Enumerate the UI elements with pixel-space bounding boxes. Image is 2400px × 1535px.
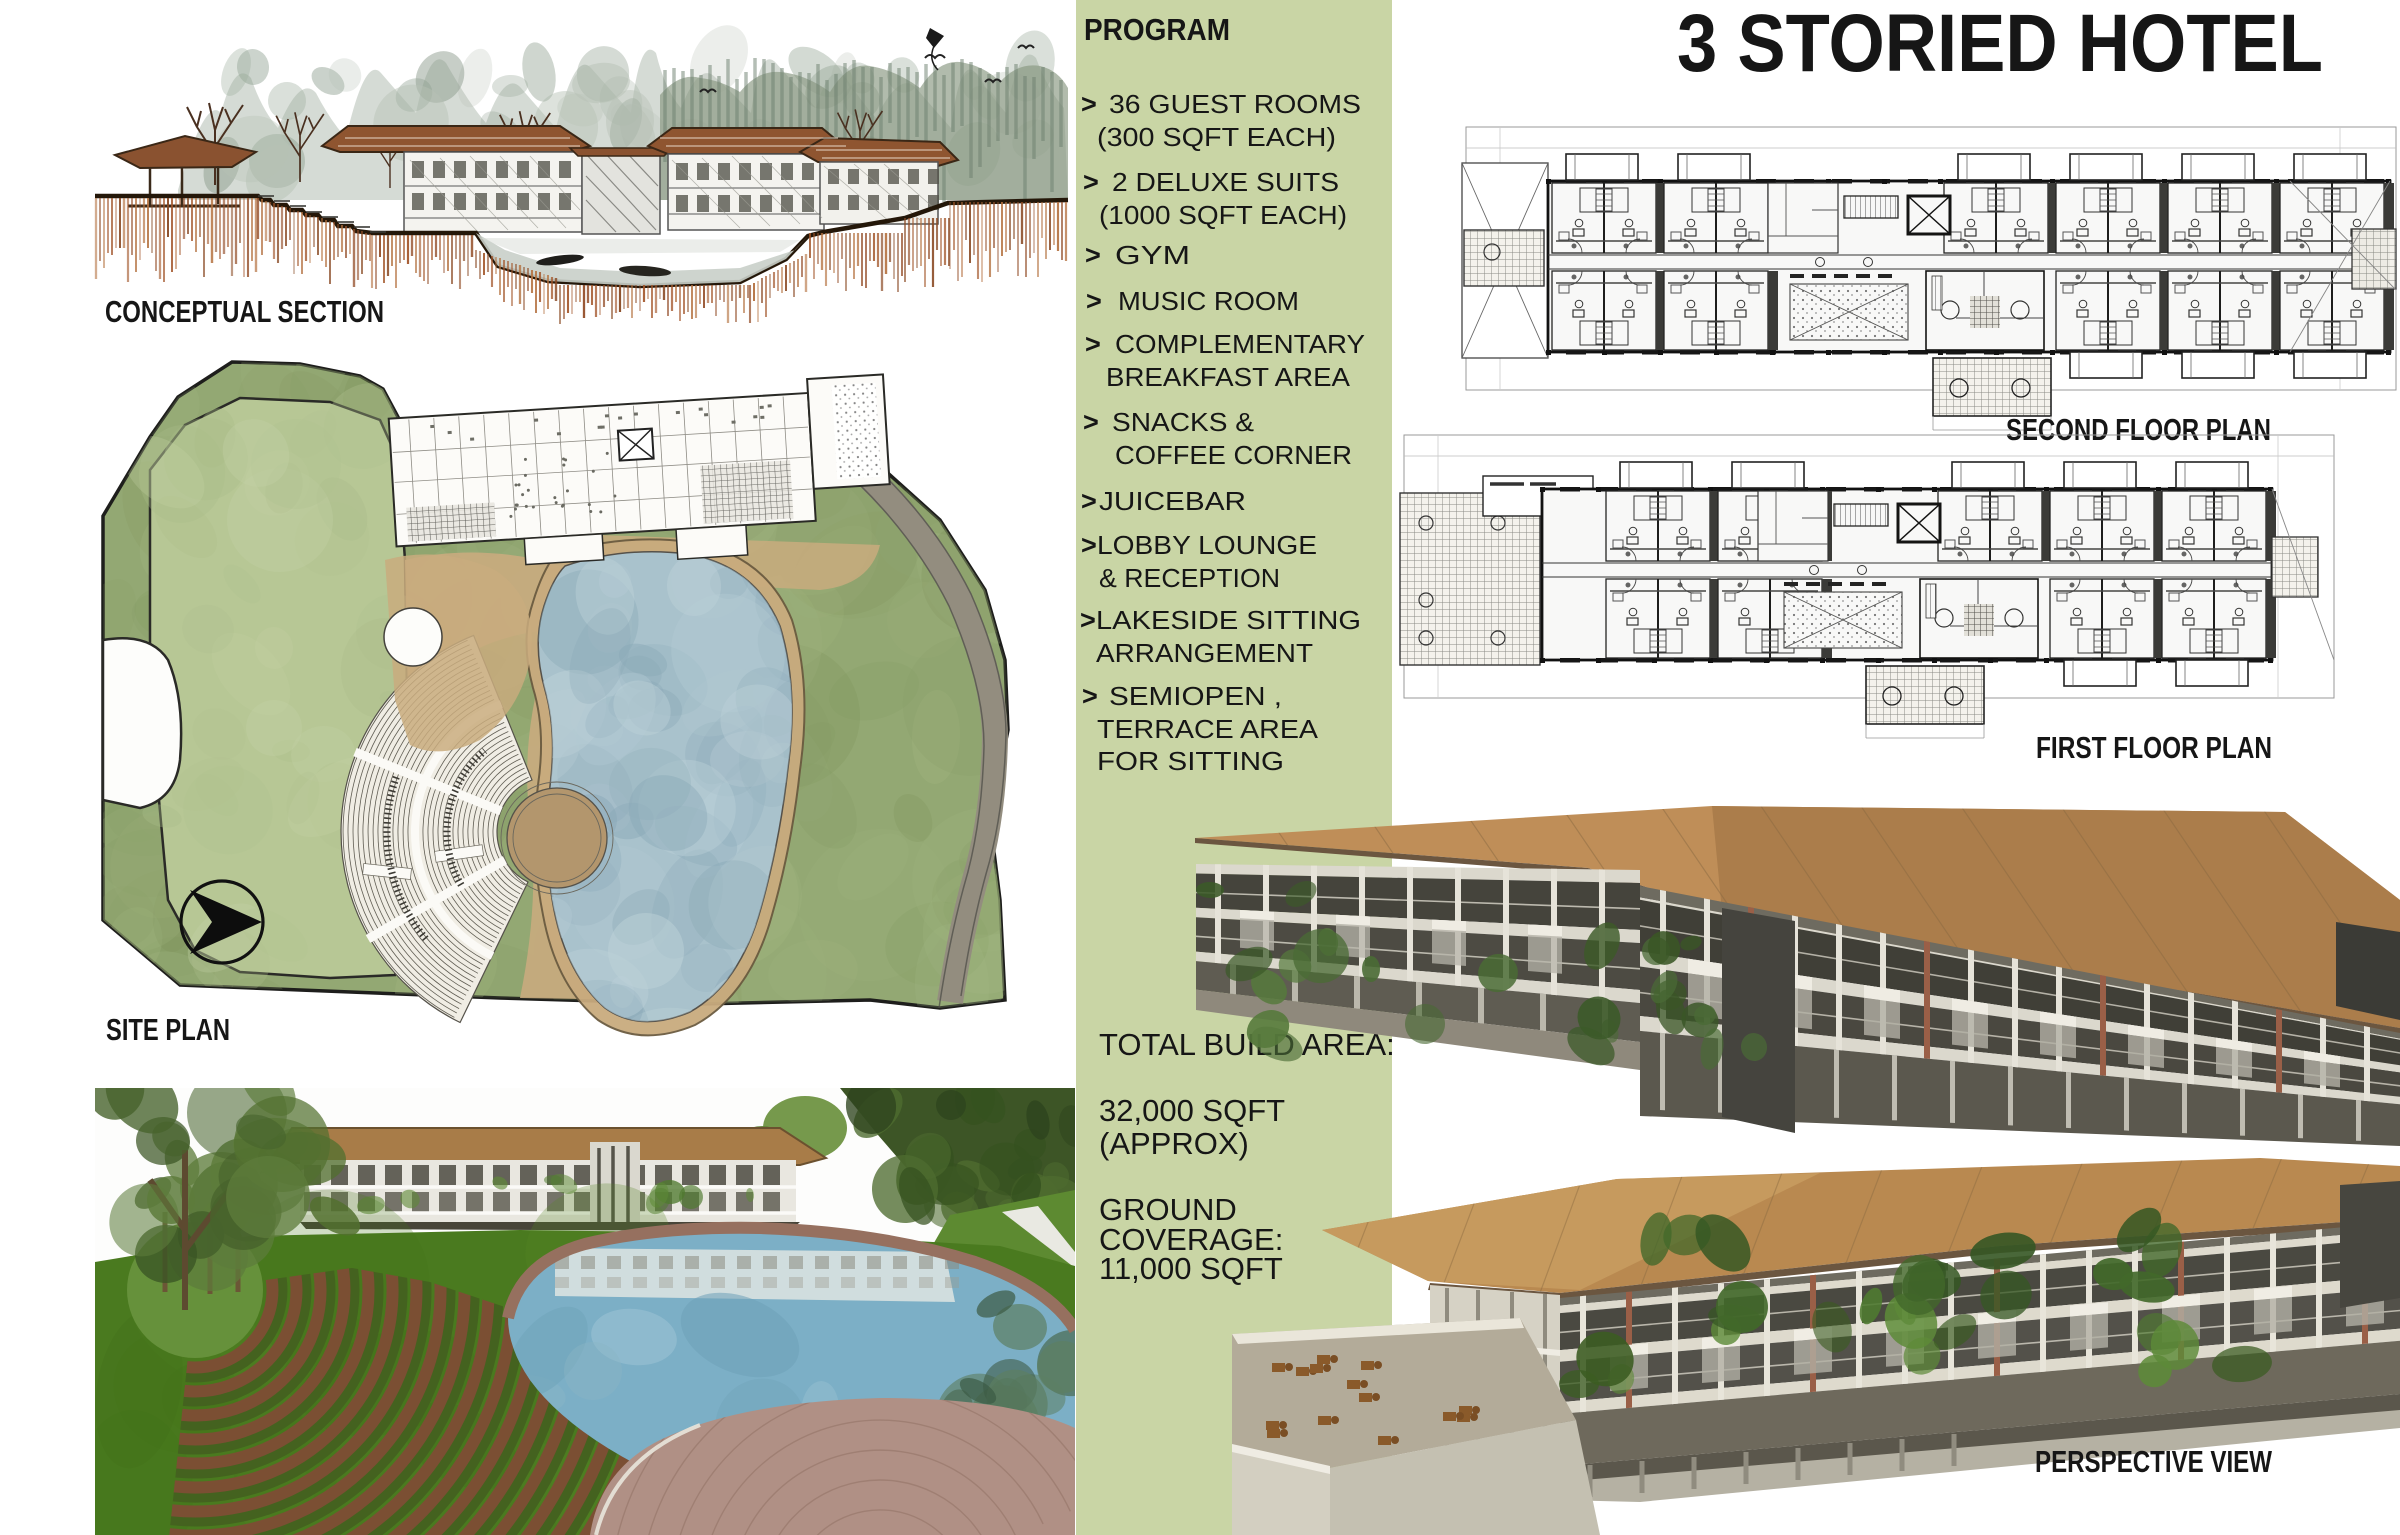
svg-text:COFFEE CORNER: COFFEE CORNER <box>1115 440 1352 470</box>
svg-text:SEMIOPEN ,: SEMIOPEN , <box>1109 681 1282 711</box>
svg-text:>: > <box>1083 167 1099 197</box>
svg-text:PERSPECTIVE VIEW: PERSPECTIVE VIEW <box>2035 1444 2273 1479</box>
svg-text:CONCEPTUAL SECTION: CONCEPTUAL SECTION <box>105 294 384 329</box>
svg-text:FIRST FLOOR PLAN: FIRST FLOOR PLAN <box>2036 730 2272 765</box>
svg-text:32,000 SQFT: 32,000 SQFT <box>1099 1093 1285 1128</box>
svg-text:& RECEPTION: & RECEPTION <box>1099 563 1280 593</box>
svg-text:SECOND FLOOR PLAN: SECOND FLOOR PLAN <box>2006 412 2271 447</box>
svg-text:ARRANGEMENT: ARRANGEMENT <box>1096 638 1313 668</box>
svg-text:>: > <box>1081 89 1097 119</box>
svg-text:GYM: GYM <box>1115 240 1190 270</box>
svg-text:MUSIC ROOM: MUSIC ROOM <box>1118 286 1299 316</box>
svg-text:11,000 SQFT: 11,000 SQFT <box>1099 1251 1283 1286</box>
svg-text:3 STORIED HOTEL: 3 STORIED HOTEL <box>1677 0 2323 89</box>
svg-text:BREAKFAST AREA: BREAKFAST AREA <box>1106 362 1351 392</box>
svg-text:>: > <box>1080 605 1096 635</box>
svg-text:(1000 SQFT EACH): (1000 SQFT EACH) <box>1099 200 1347 230</box>
svg-text:PROGRAM: PROGRAM <box>1084 12 1230 47</box>
svg-text:36 GUEST ROOMS: 36 GUEST ROOMS <box>1109 89 1361 119</box>
svg-text:>: > <box>1081 530 1097 560</box>
svg-text:>: > <box>1086 286 1102 316</box>
svg-text:>: > <box>1083 407 1099 437</box>
svg-text:>: > <box>1085 329 1101 359</box>
svg-text:(APPROX): (APPROX) <box>1099 1126 1249 1161</box>
svg-text:2 DELUXE SUITS: 2 DELUXE SUITS <box>1112 167 1339 197</box>
svg-text:>: > <box>1085 240 1101 270</box>
svg-text:FOR SITTING: FOR SITTING <box>1097 746 1284 776</box>
svg-text:>: > <box>1082 681 1098 711</box>
svg-text:TERRACE AREA: TERRACE AREA <box>1097 714 1319 744</box>
svg-text:>: > <box>1081 486 1097 516</box>
svg-text:SNACKS &: SNACKS & <box>1112 407 1254 437</box>
svg-text:(300 SQFT EACH): (300 SQFT EACH) <box>1097 122 1336 152</box>
svg-text:JUICEBAR: JUICEBAR <box>1099 486 1246 516</box>
svg-text:LOBBY LOUNGE: LOBBY LOUNGE <box>1097 530 1317 560</box>
svg-text:SITE PLAN: SITE PLAN <box>106 1012 230 1047</box>
svg-text:LAKESIDE SITTING: LAKESIDE SITTING <box>1096 605 1361 635</box>
svg-text:COMPLEMENTARY: COMPLEMENTARY <box>1115 329 1365 359</box>
